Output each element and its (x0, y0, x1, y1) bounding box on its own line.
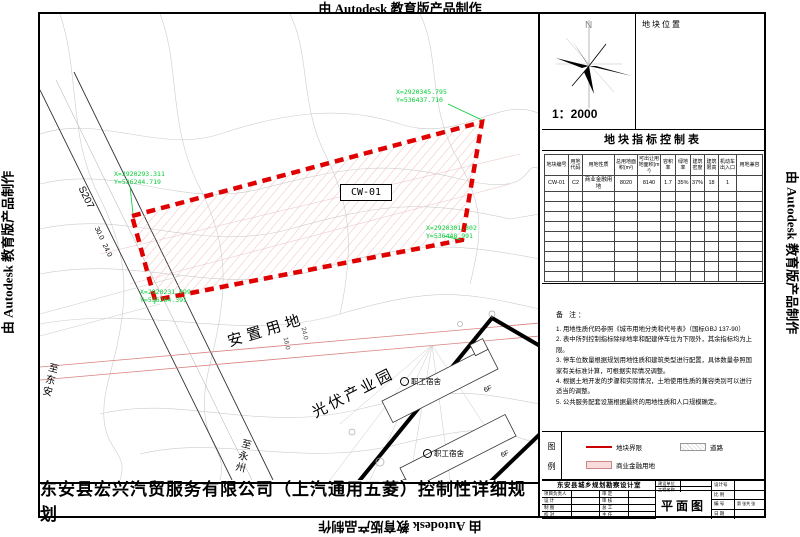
role-label: 制 图 (542, 505, 572, 511)
right-panel: N 1：2000 地块位置 地块指标控制表 (542, 14, 764, 516)
scale-row-value (734, 491, 764, 500)
date-value (734, 510, 764, 520)
footer-title-strip: 东安县宏兴汽贸服务有限公司（上汽通用五菱）控制性详细规划 (40, 482, 540, 516)
legend-item-boundary: 地块界限 (586, 442, 642, 452)
role-label: 审 定 (600, 491, 629, 497)
owner-label: 建设单位 (656, 481, 680, 486)
table-empty-row (545, 252, 763, 262)
th-plot-no: 地块编号 (545, 155, 569, 176)
coord-label-east: X=2920301.302 Y=536448.991 (426, 224, 477, 240)
role-value (572, 491, 600, 497)
parcel-code-tag: CW-01 (340, 184, 392, 201)
table-empty-row (545, 212, 763, 222)
coord-x: X=2920231.099 (140, 288, 191, 296)
title-block-row: 项目负责人 审 定 (542, 491, 656, 498)
role-label: 总 工 (600, 505, 629, 511)
legend-title-char: 例 (548, 461, 556, 472)
table-empty-row (545, 192, 763, 202)
design-no-label: 设计号 (712, 481, 734, 490)
th-height-limit: 建筑限高 (705, 155, 719, 176)
th-entrances: 机动车出入口 (719, 155, 737, 176)
table-empty-row (545, 202, 763, 212)
owner-value (680, 481, 711, 486)
role-value (629, 505, 656, 511)
map-area: S207 30.0 24.0 16.0 24.0 至东安 至永州 安置用地 光伏… (40, 14, 540, 482)
dorm-label-text: 职工宿舍 (434, 448, 464, 459)
coord-y: Y=536448.991 (426, 232, 477, 240)
cell-land-code: C2 (569, 176, 583, 192)
map-drawing (40, 14, 540, 480)
th-total-area: 总用地面积(m²) (615, 155, 638, 176)
boundary-line-swatch (586, 446, 612, 448)
coord-label-north: X=2920345.795 Y=536437.710 (396, 88, 447, 104)
role-label: 项目负责人 (542, 491, 572, 497)
legend-title: 图 例 (542, 432, 562, 481)
title-block-row: 制 图 总 工 (542, 505, 656, 512)
role-label: 主 任 (600, 512, 629, 518)
drawing-sheet: S207 30.0 24.0 16.0 24.0 至东安 至永州 安置用地 光伏… (38, 12, 766, 518)
role-value (629, 498, 656, 504)
cell-land-use: 商业金融用地 (583, 176, 615, 192)
role-value (572, 498, 600, 504)
note-item: 4. 根据土地开发的步骤和实际情况，土地使用性质的兼容类别可以进行适当的调整。 (556, 377, 754, 398)
note-item: 5. 公共服务配套设施根据最终的用地性质和人口规模确定。 (556, 398, 754, 408)
note-item: 3. 停车位数量根据规划用地性质和建筑类型进行配置，具体数量参照国家有关标准计算… (556, 356, 754, 377)
legend-item-commercial: 商业金融用地 (586, 460, 655, 470)
coord-x: X=2920293.311 (114, 170, 165, 178)
title-block-row: 日 期 (712, 510, 764, 520)
scale-row-label: 比 例 (712, 491, 734, 500)
legend-label: 道路 (710, 442, 723, 452)
watermark-right: 由 Autodesk 教育版产品制作 (784, 103, 800, 403)
coord-x: X=2920301.302 (426, 224, 477, 232)
title-block: 东安县城乡规划勘察设计室 项目负责人 审 定 设 计 审 核 制 图 总 工 校… (542, 481, 764, 516)
dorm-label-text: 职工宿舍 (411, 376, 441, 387)
cell-entrances: 1 (719, 176, 737, 192)
watermark-left: 由 Autodesk 教育版产品制作 (0, 103, 17, 403)
cell-compat (737, 176, 763, 192)
dorm-label-1: 职工宿舍 (400, 376, 441, 387)
title-block-row: 设计号 (712, 481, 764, 491)
cell-transfer-area: 8140 (638, 176, 661, 192)
svg-text:N: N (585, 20, 592, 31)
cell-green-rate: 35% (676, 176, 691, 192)
notes-list: 1. 用地性质代码参照《城市用地分类和代号表》（国标GBJ 137-90） 2.… (556, 325, 754, 408)
owner-project-cells: 建设单位 工程名称 (656, 481, 711, 491)
legend-label: 地块界限 (616, 442, 642, 452)
table-empty-row (545, 242, 763, 252)
title-block-row: 编 号第 张共 张 (712, 500, 764, 510)
notes-title: 备 注： (556, 310, 754, 320)
note-item: 1. 用地性质代码参照《城市用地分类和代号表》（国标GBJ 137-90） (556, 325, 754, 335)
cell-density: 37% (691, 176, 705, 192)
legend-item-road: 道路 (680, 442, 723, 452)
role-label: 设 计 (542, 498, 572, 504)
coord-y: Y=536437.710 (396, 96, 447, 104)
role-value (572, 512, 600, 518)
title-block-left: 东安县城乡规划勘察设计室 项目负责人 审 定 设 计 审 核 制 图 总 工 校… (542, 481, 656, 519)
date-label: 日 期 (712, 510, 734, 520)
coord-label-south: X=2920231.099 Y=536264.391 (140, 288, 191, 304)
commercial-fill-swatch (586, 461, 612, 469)
role-value (629, 491, 656, 497)
north-arrow-icon: N (542, 14, 636, 114)
cell-total-area: 8020 (615, 176, 638, 192)
title-block-row: 校 对 主 任 (542, 512, 656, 519)
th-land-code: 用地代码 (569, 155, 583, 176)
road-hatch-swatch (680, 443, 706, 451)
cell-height-limit: 18 (705, 176, 719, 192)
cell-plot-no: CW-01 (545, 176, 569, 192)
control-table: 地块编号 用地代码 用地性质 总用地面积(m²) 可出让用地面积(m²) 容积率… (544, 154, 763, 282)
coord-y: Y=536244.719 (114, 178, 165, 186)
legend-title-char: 图 (548, 441, 556, 452)
cell-far: 1.7 (661, 176, 676, 192)
coord-label-west: X=2920293.311 Y=536244.719 (114, 170, 165, 186)
title-block-middle: 建设单位 工程名称 平面图 (656, 481, 712, 519)
control-table-wrap: 地块编号 用地代码 用地性质 总用地面积(m²) 可出让用地面积(m²) 容积率… (542, 151, 764, 284)
legend-label: 商业金融用地 (616, 460, 655, 470)
note-item: 2. 表中所列控制指标除绿地率和配建停车位为下限外，其余指标均为上限。 (556, 335, 754, 356)
table-header-row: 地块编号 用地代码 用地性质 总用地面积(m²) 可出让用地面积(m²) 容积率… (545, 155, 763, 176)
th-transfer-area: 可出让用地面积(m²) (638, 155, 661, 176)
coord-x: X=2920345.795 (396, 88, 447, 96)
dorm-label-2: 职工宿舍 (423, 448, 464, 459)
number-label: 编 号 (712, 500, 734, 509)
notes-section: 备 注： 1. 用地性质代码参照《城市用地分类和代号表》（国标GBJ 137-9… (542, 284, 764, 432)
control-table-title: 地块指标控制表 (542, 130, 764, 151)
th-far: 容积率 (661, 155, 676, 176)
sheet-note: 第 张共 张 (734, 500, 764, 509)
th-compat: 用地兼容 (737, 155, 763, 176)
design-office-name: 东安县城乡规划勘察设计室 (542, 481, 656, 491)
legend-items: 地块界限 道路 商业金融用地 (562, 432, 764, 481)
north-arrow-cell: N 1：2000 (542, 14, 636, 130)
th-density: 建筑密度 (691, 155, 705, 176)
drawing-type-title: 平面图 (656, 491, 711, 519)
table-empty-row (545, 222, 763, 232)
th-land-use: 用地性质 (583, 155, 615, 176)
role-label: 审 核 (600, 498, 629, 504)
role-value (629, 512, 656, 518)
plot-location-title: 地块位置 (642, 19, 682, 30)
title-block-row: 设 计 审 核 (542, 498, 656, 505)
building-marker-icon (423, 449, 432, 458)
scale-label: 1：2000 (552, 105, 597, 122)
table-empty-row (545, 262, 763, 272)
title-block-row: 比 例 (712, 491, 764, 501)
title-block-right: 设计号 比 例 编 号第 张共 张 日 期 (712, 481, 764, 519)
panel-top-row: N 1：2000 地块位置 (542, 14, 764, 130)
table-empty-row (545, 272, 763, 282)
table-data-row: CW-01 C2 商业金融用地 8020 8140 1.7 35% 37% 18… (545, 176, 763, 192)
building-marker-icon (400, 377, 409, 386)
role-label: 校 对 (542, 512, 572, 518)
th-green-rate: 绿地率 (676, 155, 691, 176)
drawing-main-title: 东安县宏兴汽贸服务有限公司（上汽通用五菱）控制性详细规划 (40, 475, 538, 525)
coord-y: Y=536264.391 (140, 296, 191, 304)
design-no-value (734, 481, 764, 490)
role-value (572, 505, 600, 511)
legend-section: 图 例 地块界限 道路 商业金融用地 (542, 432, 764, 481)
plot-location-cell: 地块位置 (636, 14, 764, 130)
table-empty-row (545, 232, 763, 242)
